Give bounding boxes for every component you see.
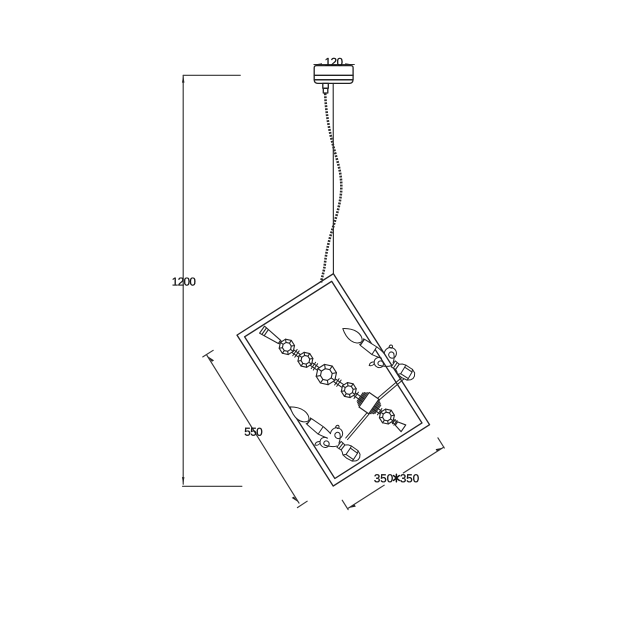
svg-text:1200: 1200 [172,276,196,288]
svg-text:120: 120 [325,57,343,69]
svg-text:550: 550 [244,427,262,439]
svg-text:350: 350 [400,473,419,485]
svg-text:350: 350 [374,473,393,485]
